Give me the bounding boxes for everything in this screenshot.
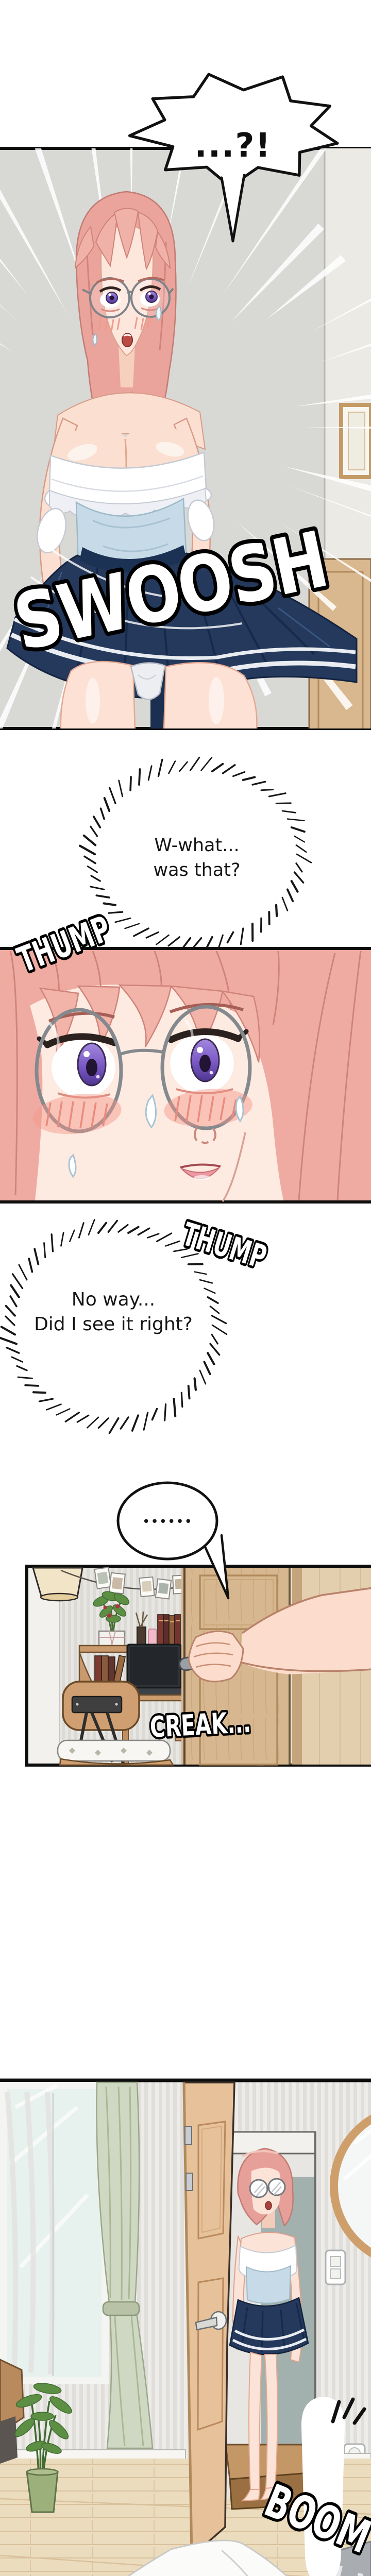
panel-3-room-door: CREAK... [27, 1566, 371, 1765]
chair-shadow [0, 2416, 18, 2464]
panel-4-doorway-reveal: BOOM [0, 2080, 371, 2576]
panel-1-skirt-swoosh: SWOOSH [0, 70, 371, 772]
wall-right [325, 148, 371, 567]
thought2-line2: Did I see it right? [34, 1314, 193, 1335]
hinge-bottom [186, 2173, 193, 2191]
webtoon-strip: SWOOSH ...?! W-what... was that? [0, 0, 371, 2576]
leg-left [249, 2352, 262, 2489]
thought1-line2: was that? [153, 860, 240, 880]
hinge-top [185, 2127, 192, 2144]
webtoon-page: SWOOSH ...?! W-what... was that? [0, 0, 371, 2576]
reed-diffuser [137, 1627, 146, 1646]
sfx-thump-right: THUMP [178, 1215, 271, 1276]
books-lower [95, 1655, 125, 1682]
light-switch [326, 2250, 345, 2284]
thought2-line1: No way... [72, 1289, 155, 1310]
leg-right [265, 2354, 278, 2488]
books-upper [158, 1615, 180, 1646]
thought1-line1: W-what... [154, 835, 239, 856]
silence-dots: •••••• [142, 1514, 193, 1530]
shock-text: ...?! [194, 127, 271, 165]
curtain-tieback [103, 2302, 139, 2315]
sfx-creak: CREAK... [149, 1706, 251, 1744]
bodice-small [246, 2266, 291, 2303]
spray-bottle [148, 1629, 157, 1646]
mouth-small [265, 2201, 272, 2210]
thought-bubble-1: W-what... was that? [80, 757, 311, 952]
panel-2-face-closeup [0, 948, 371, 1202]
plant-pot [27, 2472, 58, 2512]
desk-lamp [33, 1568, 82, 1597]
window [3, 2086, 105, 2380]
